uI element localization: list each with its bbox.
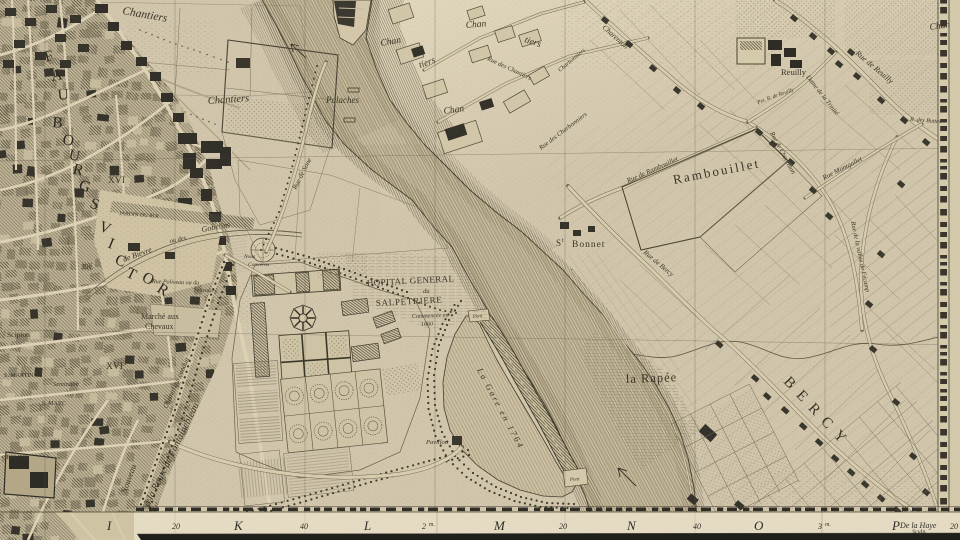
svg-text:I: I: [106, 518, 112, 533]
svg-text:XVI: XVI: [108, 176, 125, 186]
svg-text:Couverns: Couverns: [248, 262, 269, 268]
svg-text:20: 20: [559, 522, 567, 531]
svg-text:XVI: XVI: [106, 362, 123, 372]
svg-text:Marché aux: Marché aux: [141, 312, 179, 321]
svg-text:OBELINS: OBELINS: [2, 455, 27, 461]
svg-text:Nous: Nous: [243, 254, 255, 260]
svg-text:Pavillon: Pavillon: [425, 439, 448, 446]
svg-text:20: 20: [172, 522, 180, 531]
svg-text:1660: 1660: [421, 322, 433, 328]
svg-text:O: O: [754, 518, 764, 533]
svg-text:B: B: [52, 114, 64, 132]
svg-text:M: M: [493, 518, 506, 533]
svg-text:40: 40: [300, 522, 308, 531]
svg-text:20: 20: [950, 522, 958, 531]
svg-text:40: 40: [693, 522, 701, 531]
svg-text:S. MARC: S. MARC: [42, 401, 66, 407]
svg-text:Chevaux: Chevaux: [145, 322, 173, 331]
svg-text:P: P: [891, 518, 900, 533]
svg-text:U: U: [57, 86, 70, 104]
svg-text:3: 3: [817, 522, 822, 531]
svg-text:Commencée en: Commencée en: [412, 313, 449, 320]
svg-text:S: S: [556, 238, 561, 248]
svg-text:la Rapée: la Rapée: [626, 370, 678, 386]
svg-text:Reuilly: Reuilly: [781, 67, 807, 77]
svg-text:Sculp.: Sculp.: [912, 530, 927, 536]
svg-text:m.: m.: [429, 522, 435, 528]
svg-text:du: du: [423, 288, 430, 295]
svg-text:Palaches: Palaches: [325, 95, 359, 105]
svg-text:Riv.: Riv.: [82, 263, 94, 271]
svg-text:N: N: [626, 518, 637, 533]
svg-text:Chan: Chan: [465, 19, 487, 31]
svg-text:Bonnet: Bonnet: [572, 240, 605, 250]
svg-text:S. MARTIN: S. MARTIN: [4, 373, 34, 379]
svg-text:Seminaire: Seminaire: [53, 381, 79, 388]
svg-text:2: 2: [422, 522, 426, 531]
svg-text:L: L: [363, 518, 371, 533]
svg-text:Pont: Pont: [569, 477, 580, 483]
svg-text:m.: m.: [825, 522, 831, 528]
svg-text:Scipion: Scipion: [7, 330, 30, 339]
svg-text:K: K: [233, 518, 244, 533]
